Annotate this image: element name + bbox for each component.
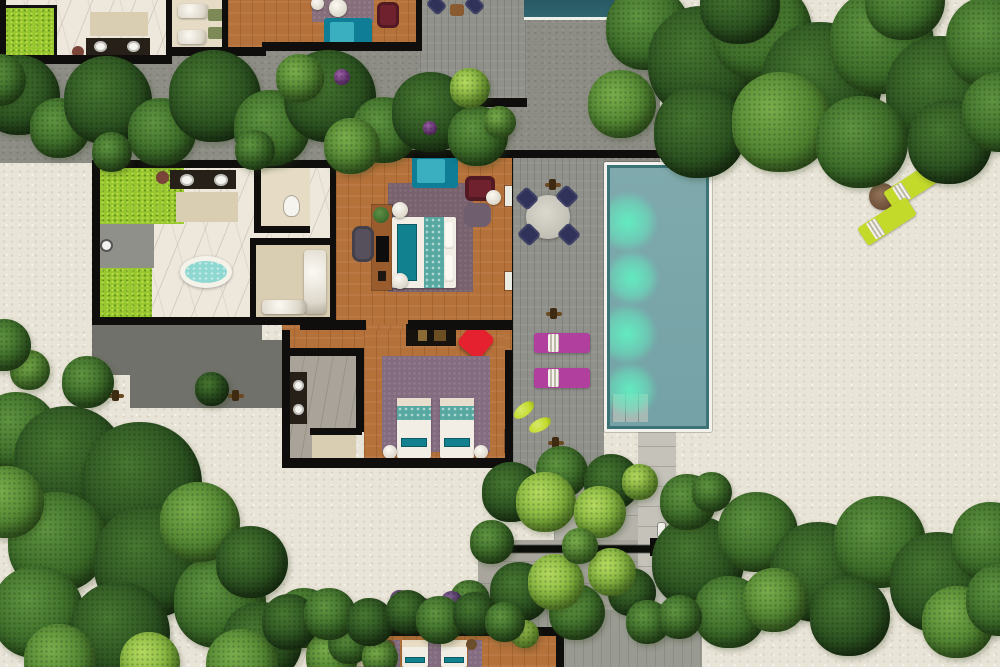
wall [505, 350, 513, 468]
patio-lamp [228, 394, 244, 398]
teal-daybed [412, 153, 458, 188]
wall [283, 629, 290, 667]
headboard [402, 640, 428, 647]
wall [290, 348, 362, 356]
neighbor-villa-bottom [0, 600, 1000, 667]
wall [556, 627, 564, 667]
lounger-towel [866, 218, 886, 240]
wall [92, 160, 336, 168]
vanity-stool [156, 171, 169, 184]
bedside-pouf [392, 202, 408, 218]
pillow [444, 222, 454, 249]
round-stool [466, 639, 477, 650]
decor-box [378, 271, 386, 281]
bedside-pouf [392, 273, 408, 289]
tv [376, 236, 389, 262]
rug [428, 640, 441, 667]
wall [350, 627, 562, 636]
toilet-room-floor [261, 168, 310, 226]
plant [373, 207, 389, 223]
shower-head [102, 241, 111, 250]
pool-rim [607, 165, 709, 429]
wall [250, 238, 256, 318]
wall [408, 320, 512, 330]
wall [250, 238, 330, 245]
closet-bench [262, 300, 306, 314]
twin-bed [397, 398, 431, 458]
bed [441, 640, 467, 667]
daybed-cushion [417, 159, 445, 183]
wall [330, 160, 336, 325]
pool-light-glow [610, 363, 657, 417]
gate-post [658, 523, 665, 537]
closet-bench [304, 250, 326, 314]
sink [214, 174, 228, 186]
twin-bed [440, 398, 474, 458]
sink [293, 380, 304, 391]
pool-light-glow [610, 192, 658, 252]
gate-base [650, 538, 674, 556]
bed-floral-band [424, 217, 444, 288]
headboard [441, 640, 467, 647]
pool-light-glow [610, 304, 657, 364]
bed-floral-band [397, 406, 431, 420]
planter-pot [203, 380, 220, 397]
lounger-towel [548, 334, 559, 352]
round-stool [384, 640, 395, 651]
wall [283, 629, 355, 638]
patio-lamp [108, 394, 124, 398]
wall [356, 348, 364, 432]
swimming-pool [604, 162, 712, 432]
bathtub [180, 256, 232, 288]
wall [282, 458, 512, 468]
pillow [444, 255, 454, 282]
resort-site-plan [0, 0, 1000, 667]
wall [520, 150, 722, 158]
guest-vanity [290, 372, 307, 424]
bath-rug [176, 192, 238, 222]
wall [336, 150, 520, 158]
wall [310, 428, 362, 435]
bed-runner [444, 438, 470, 447]
shower-pad [100, 224, 154, 268]
deck-lamp [548, 441, 564, 445]
sun-lounger-magenta [534, 368, 590, 388]
bed [402, 640, 428, 667]
bathtub-water [185, 261, 227, 283]
side-table [486, 190, 501, 205]
sun-lounger-magenta [534, 333, 590, 353]
desk-chair [352, 226, 374, 262]
lounger-towel [548, 369, 559, 387]
sink [180, 174, 194, 186]
wall [92, 317, 332, 325]
bathroom-floor [290, 638, 352, 667]
bed-floral-band [440, 406, 474, 420]
foot-pouf [474, 445, 488, 459]
decor [418, 330, 427, 341]
shower-court-grass-bottom [100, 268, 152, 317]
bed-runner [444, 657, 464, 663]
sink [293, 404, 304, 415]
headboard [397, 398, 431, 406]
deck-lamp [545, 183, 561, 187]
headboard-console [372, 205, 392, 290]
wall [282, 330, 290, 467]
wall [92, 160, 100, 325]
headboard [440, 398, 474, 406]
bed-runner [405, 657, 425, 663]
main-villa [0, 0, 1000, 667]
toilet [284, 196, 299, 216]
bed-runner [401, 438, 427, 447]
gate-post [658, 557, 665, 571]
wall [300, 320, 366, 330]
wall [254, 226, 310, 233]
deck-lamp [546, 312, 562, 316]
decor [434, 329, 446, 341]
wall [254, 168, 261, 232]
foot-pouf [383, 445, 397, 459]
stairs [352, 638, 368, 667]
pool-light-glow [610, 251, 659, 305]
master-vanity [170, 170, 236, 189]
purple-ottoman [464, 203, 491, 227]
pool-water [610, 168, 706, 426]
